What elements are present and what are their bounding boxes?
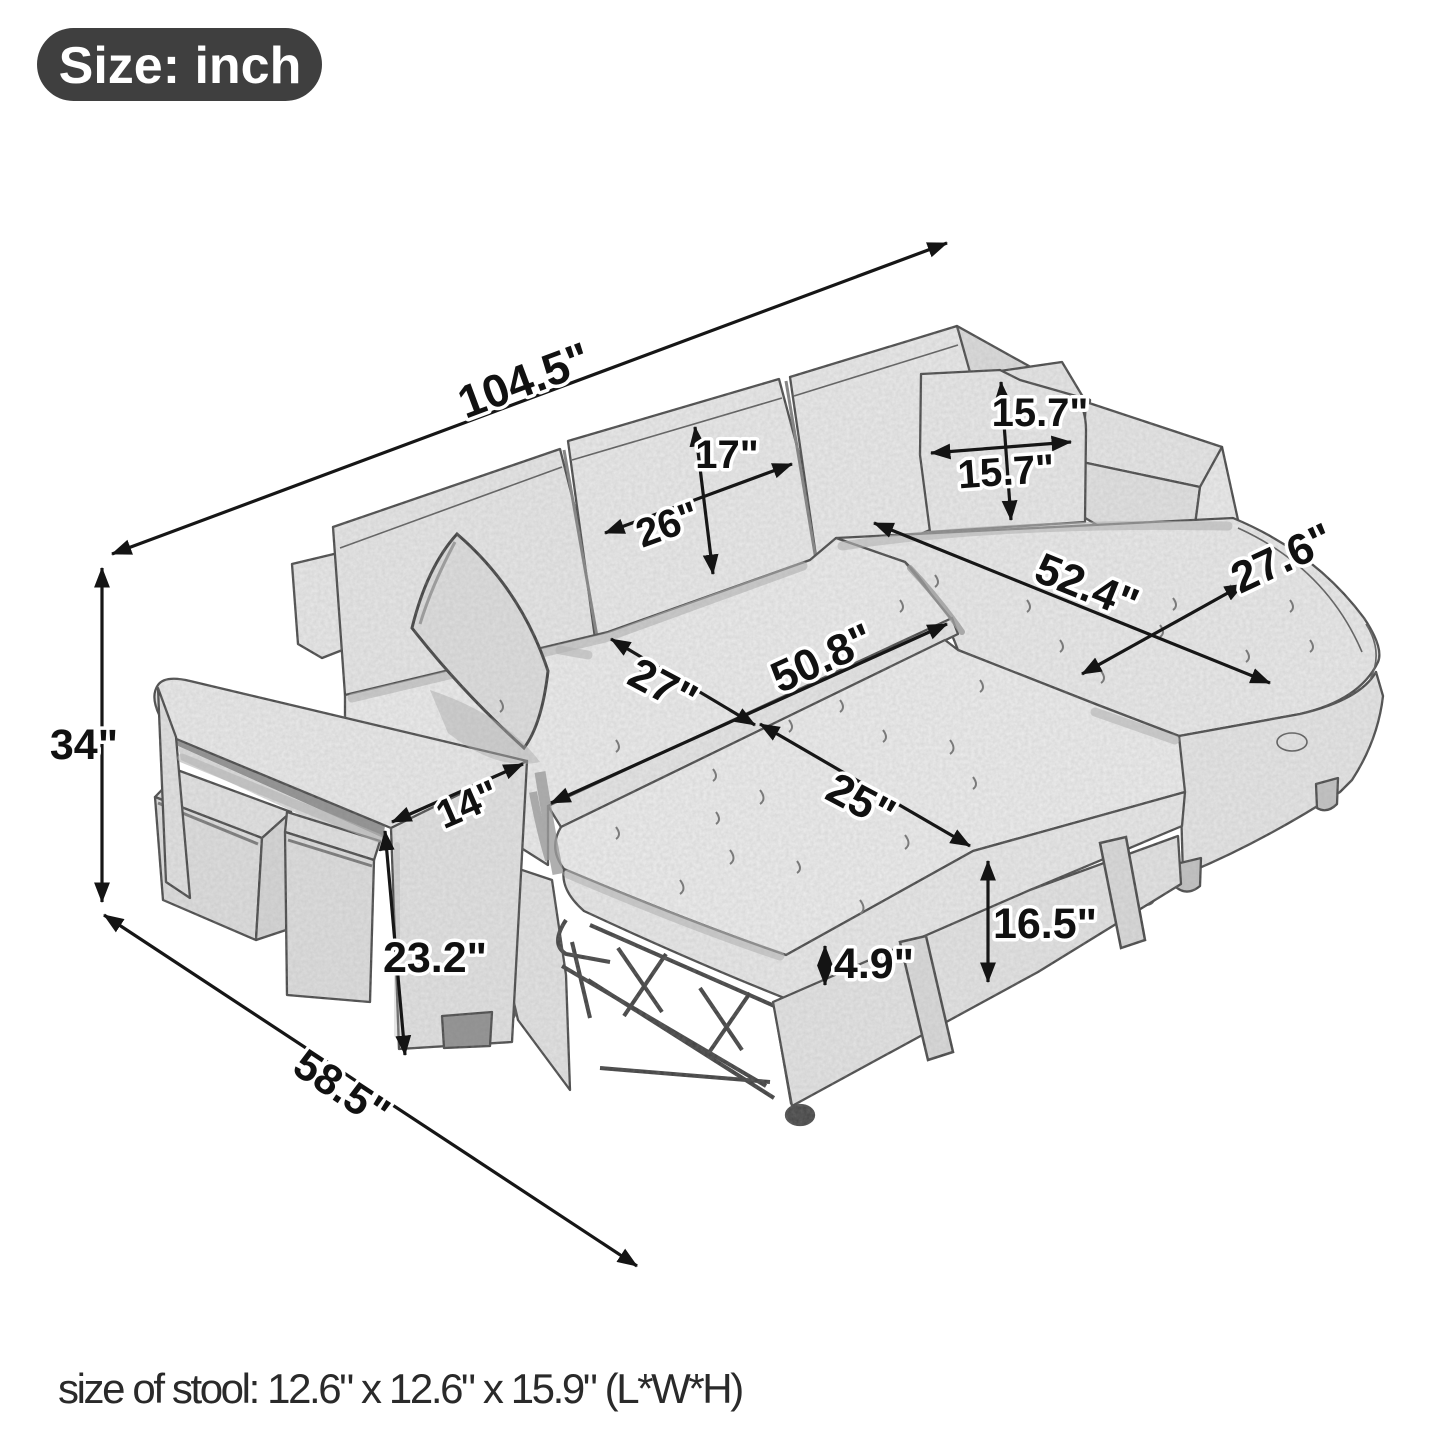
svg-text:Size: inch: Size: inch: [59, 37, 302, 95]
svg-text:17": 17": [695, 433, 758, 477]
svg-text:34": 34": [50, 721, 118, 769]
svg-text:23.2": 23.2": [383, 934, 487, 982]
svg-text:16.5": 16.5": [993, 900, 1097, 948]
svg-text:4.9": 4.9": [834, 940, 914, 988]
svg-text:15.7": 15.7": [992, 391, 1089, 435]
svg-text:size of stool: 12.6" x 12.6" x: size of stool: 12.6" x 12.6" x 15.9" (L*…: [58, 1365, 742, 1412]
svg-text:15.7": 15.7": [956, 447, 1056, 498]
